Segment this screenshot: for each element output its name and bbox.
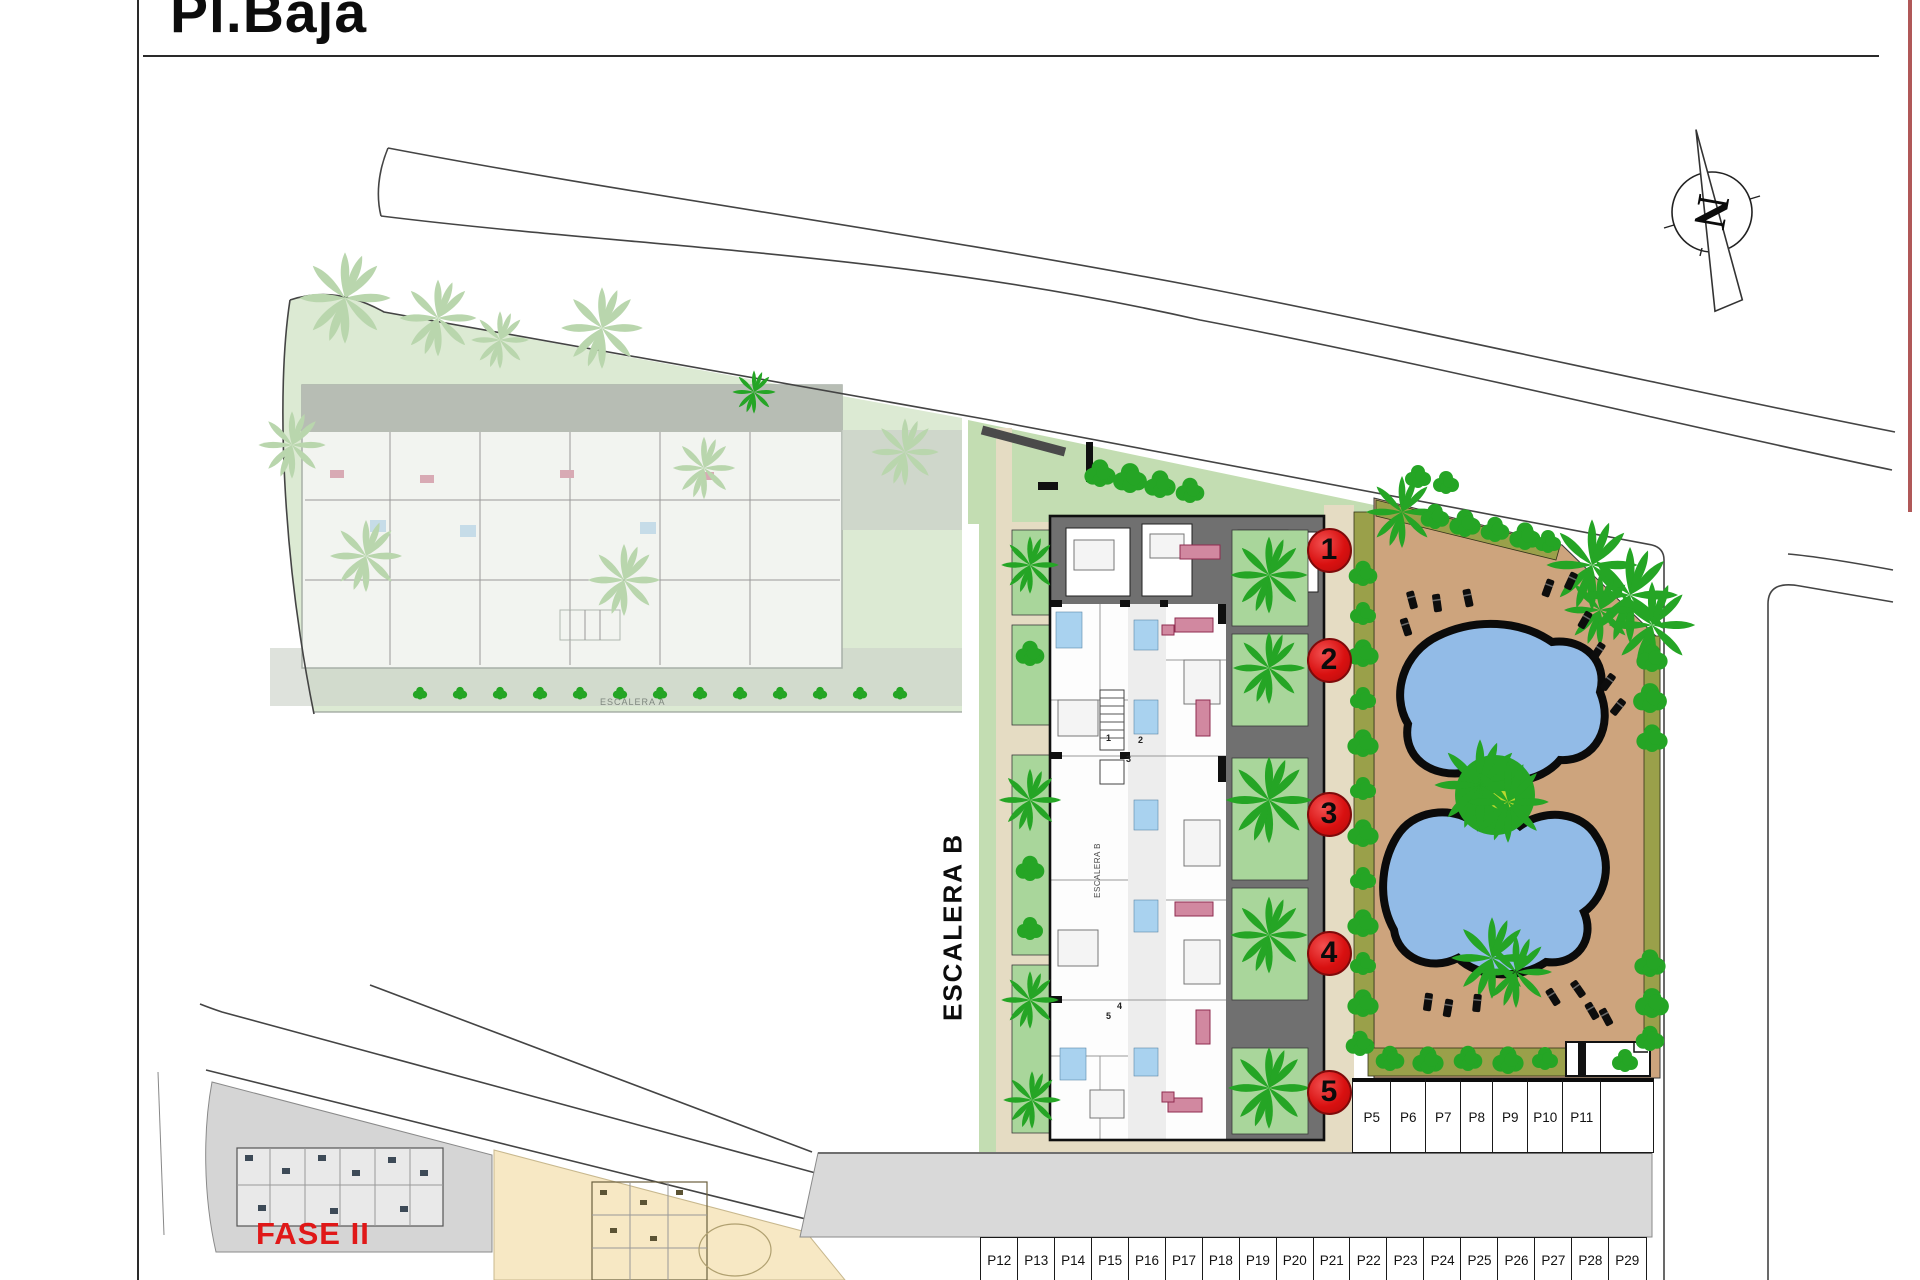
palm-symbol — [1231, 897, 1308, 974]
faded-phase-site — [270, 295, 962, 712]
unit-marker-4[interactable]: 4 — [1307, 931, 1352, 976]
pool-shed — [1566, 1042, 1650, 1076]
parking-stall: P9 — [1492, 1078, 1529, 1153]
palm-symbol — [1226, 757, 1312, 843]
palm-symbol — [1233, 632, 1305, 704]
page-title: Pl.Baja — [170, 0, 367, 46]
palm-symbol — [471, 311, 529, 369]
parking-stall: P27 — [1534, 1237, 1573, 1280]
parking-stall: P19 — [1239, 1237, 1278, 1280]
compass-n-label: N — [1684, 191, 1740, 233]
palm-symbol — [1003, 1071, 1061, 1129]
plan-number: 4 — [1117, 1001, 1122, 1011]
site-plan-sheet: N Pl.Baja ESCALERA B ESCALERA B ESCALERA… — [0, 0, 1920, 1280]
stairwell-b-inner-label: ESCALERA B — [1093, 843, 1102, 898]
access-road — [800, 1153, 1652, 1237]
palm-symbol — [673, 437, 735, 499]
palm-symbol — [1467, 761, 1549, 843]
parking-stall: P21 — [1313, 1237, 1352, 1280]
palm-symbol — [1564, 574, 1636, 646]
bush-symbol — [1449, 509, 1480, 537]
plan-number: 1 — [1106, 733, 1111, 743]
bush-symbol — [1535, 530, 1561, 553]
unit-marker-2[interactable]: 2 — [1307, 638, 1352, 683]
parking-stall: P25 — [1460, 1237, 1499, 1280]
palm-symbol — [999, 769, 1061, 831]
north-compass: N — [1664, 127, 1760, 311]
palm-symbol — [1228, 1047, 1310, 1129]
palm-symbol — [561, 287, 643, 369]
phase2-label: FASE II — [256, 1216, 370, 1252]
building-escalera-b — [1050, 516, 1324, 1140]
parking-stall: P13 — [1017, 1237, 1056, 1280]
palm-symbol — [1001, 971, 1059, 1029]
bush-symbol — [1421, 504, 1450, 529]
parking-stall: P14 — [1054, 1237, 1093, 1280]
parking-stall: P16 — [1128, 1237, 1167, 1280]
parking-stall: P7 — [1425, 1078, 1462, 1153]
palm-symbol — [330, 520, 402, 592]
parking-stall: P15 — [1091, 1237, 1130, 1280]
plan-number: 5 — [1106, 1011, 1111, 1021]
bush-symbol — [1433, 471, 1459, 494]
key-plan-phase2-building — [237, 1148, 443, 1226]
parking-stall: P28 — [1571, 1237, 1610, 1280]
palm-symbol — [1480, 936, 1552, 1008]
sheet-edge-mark — [1908, 0, 1912, 512]
stairs — [1100, 690, 1124, 784]
stairwell-b-label: ESCALERA B — [927, 845, 979, 1009]
parking-stall — [1600, 1078, 1654, 1153]
palm-symbol — [1001, 536, 1059, 594]
palm-symbol — [299, 252, 390, 343]
unit-marker-3[interactable]: 3 — [1307, 792, 1352, 837]
bush-symbol — [1481, 517, 1510, 542]
parking-stall: P5 — [1352, 1078, 1392, 1153]
unit-marker-5[interactable]: 5 — [1307, 1070, 1352, 1115]
parking-stall: P8 — [1460, 1078, 1494, 1153]
bush-symbol — [1405, 465, 1431, 488]
parking-stall: P18 — [1202, 1237, 1241, 1280]
sheet-left-border — [137, 0, 139, 1280]
parking-stall: P17 — [1165, 1237, 1204, 1280]
parking-stall: P20 — [1276, 1237, 1315, 1280]
plan-number: 3 — [1126, 754, 1131, 764]
parking-stall: P6 — [1390, 1078, 1427, 1153]
parking-stall: P22 — [1349, 1237, 1388, 1280]
parking-stall: P23 — [1386, 1237, 1425, 1280]
palm-symbol — [732, 370, 775, 413]
palm-symbol — [258, 411, 325, 478]
stairwell-a-inner-label: ESCALERA A — [600, 697, 666, 707]
parking-stall: P29 — [1608, 1237, 1647, 1280]
title-divider — [143, 55, 1879, 57]
parking-stall: P11 — [1562, 1078, 1602, 1153]
palm-symbol — [871, 418, 938, 485]
palm-symbol — [400, 280, 477, 357]
palm-symbol — [588, 544, 660, 616]
parking-stall: P10 — [1527, 1078, 1564, 1153]
palm-symbol — [1231, 537, 1308, 614]
plan-number: 2 — [1138, 735, 1143, 745]
parking-stall: P26 — [1497, 1237, 1536, 1280]
unit-marker-1[interactable]: 1 — [1307, 528, 1352, 573]
parking-stall: P12 — [980, 1237, 1019, 1280]
parking-stall: P24 — [1423, 1237, 1462, 1280]
